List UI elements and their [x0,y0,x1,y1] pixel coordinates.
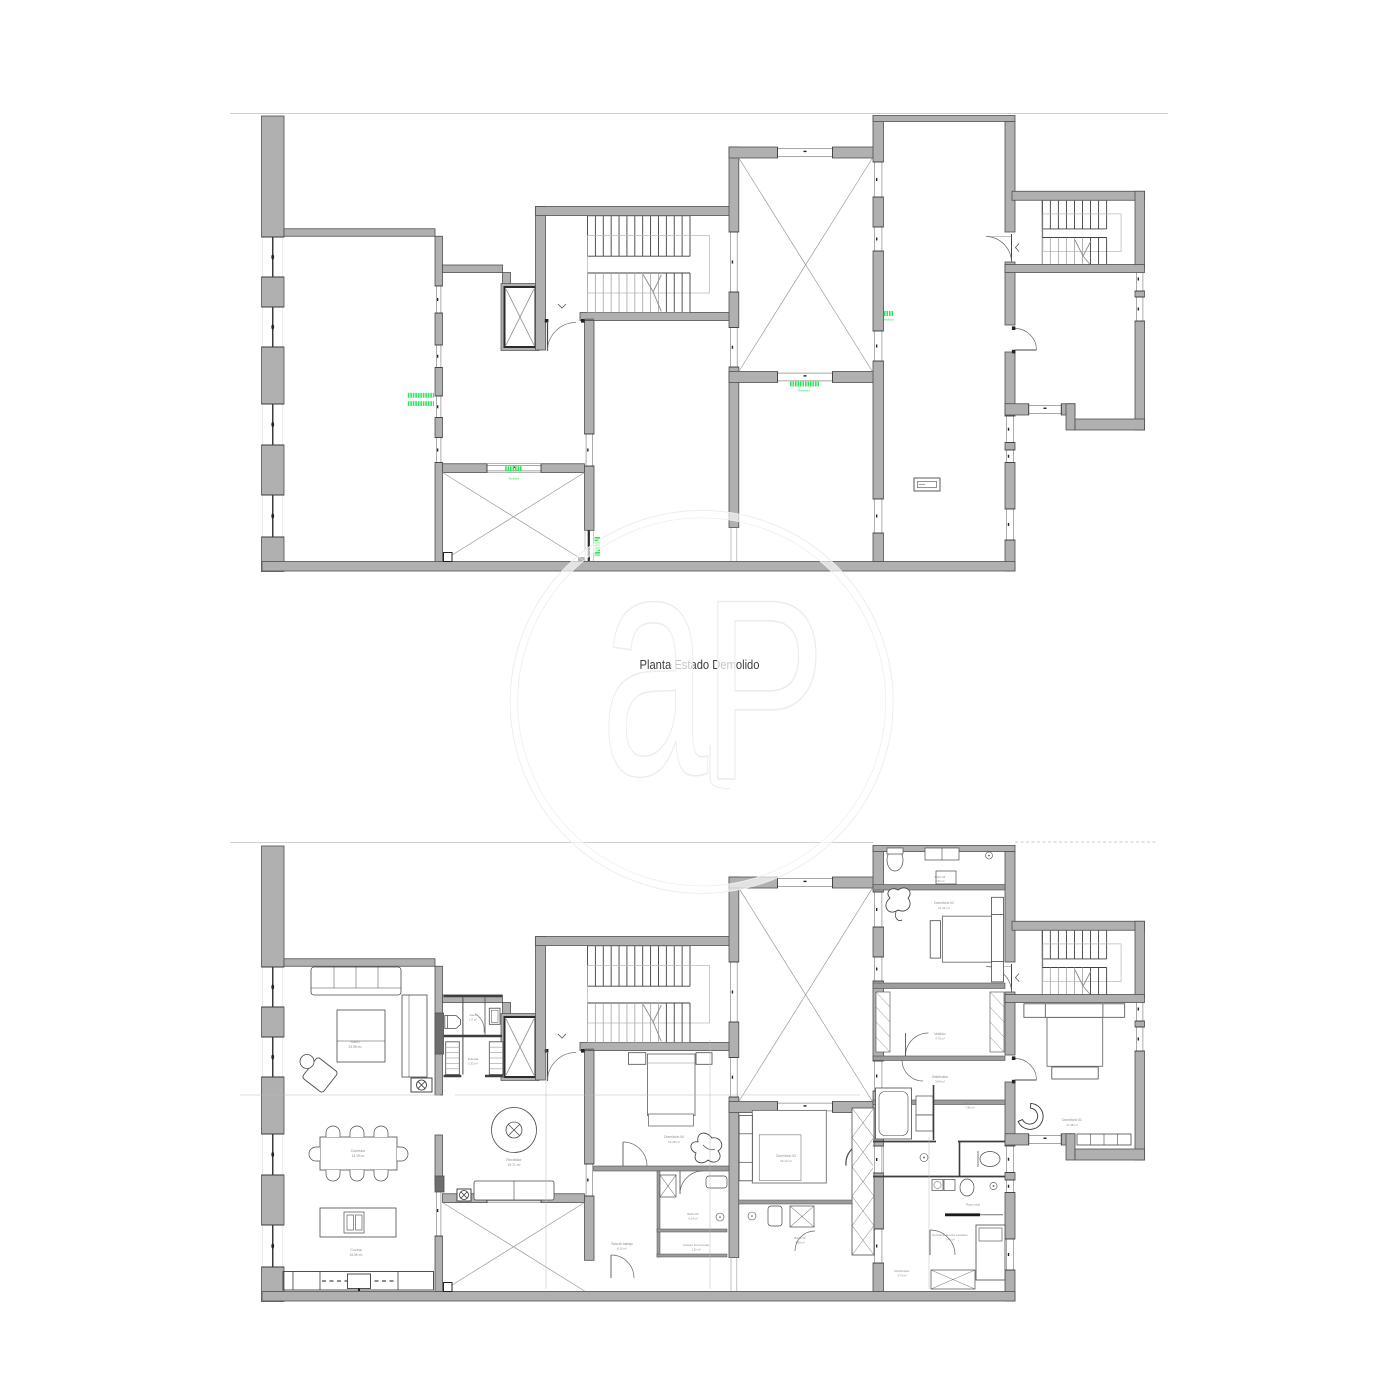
svg-text:Comedor: Comedor [351,1149,367,1153]
svg-text:P: P [703,545,826,834]
svg-text:2.32 m²: 2.32 m² [468,1062,478,1066]
svg-text:Baño 01: Baño 01 [964,1101,976,1105]
svg-text:23.95 m²: 23.95 m² [348,1045,362,1049]
svg-text:21.31 m²: 21.31 m² [938,906,950,910]
svg-text:Distribuidor: Distribuidor [932,1075,949,1079]
svg-text:Cocina: Cocina [350,1248,361,1252]
svg-text:Salón: Salón [350,1040,359,1044]
svg-text:Distribuidor: Distribuidor [894,1269,909,1273]
svg-text:Vestidor: Vestidor [934,1032,946,1036]
svg-text:Radiador: Radiador [798,389,810,393]
svg-text:14.28 m²: 14.28 m² [668,1140,680,1144]
svg-text:Aseo: Aseo [470,1013,477,1017]
svg-text:Dormitorio servicio Lavadero: Dormitorio servicio Lavadero [932,1233,968,1237]
svg-text:3.04 m²: 3.04 m² [935,1080,945,1084]
svg-text:Dormitorio 01: Dormitorio 01 [1062,1118,1082,1122]
svg-text:3.96 m²: 3.96 m² [935,879,944,883]
svg-text:1.5 m²: 1.5 m² [469,1018,477,1022]
svg-text:a: a [601,484,709,843]
svg-text:3.73 m²: 3.73 m² [897,1274,907,1278]
svg-text:Dormitorio 02: Dormitorio 02 [934,901,954,905]
svg-text:Radiador: Radiador [509,477,520,481]
svg-text:Dormitorio 04: Dormitorio 04 [664,1135,684,1139]
svg-text:Recibidor: Recibidor [506,1158,522,1162]
svg-text:17.48 m²: 17.48 m² [1066,1123,1078,1127]
svg-text:Entrada: Entrada [468,1057,479,1061]
svg-text:4.14 m²: 4.14 m² [688,1217,698,1221]
svg-text:8.10 m²: 8.10 m² [617,1247,627,1251]
svg-text:16.14 m²: 16.14 m² [780,1159,792,1163]
svg-text:13.19 m²: 13.19 m² [351,1154,365,1158]
svg-text:4.73 m²: 4.73 m² [935,1037,945,1041]
svg-text:Dormitorio 03: Dormitorio 03 [776,1154,796,1158]
svg-text:7.43 m²: 7.43 m² [945,1238,954,1242]
svg-text:15.59 m²: 15.59 m² [349,1253,363,1257]
svg-text:Armario Incorporado: Armario Incorporado [683,1243,710,1247]
svg-text:Ropa sucia: Ropa sucia [966,1203,980,1207]
svg-text:Radiador: Radiador [884,318,895,322]
svg-text:Baño 04: Baño 04 [687,1212,699,1216]
svg-text:7.82 m²: 7.82 m² [965,1106,975,1110]
svg-text:Baño 04: Baño 04 [935,875,946,879]
svg-text:1.32 m²: 1.32 m² [691,1248,700,1252]
svg-text:Sala de trabajo: Sala de trabajo [611,1242,633,1246]
svg-text:19.71 m²: 19.71 m² [507,1163,521,1167]
